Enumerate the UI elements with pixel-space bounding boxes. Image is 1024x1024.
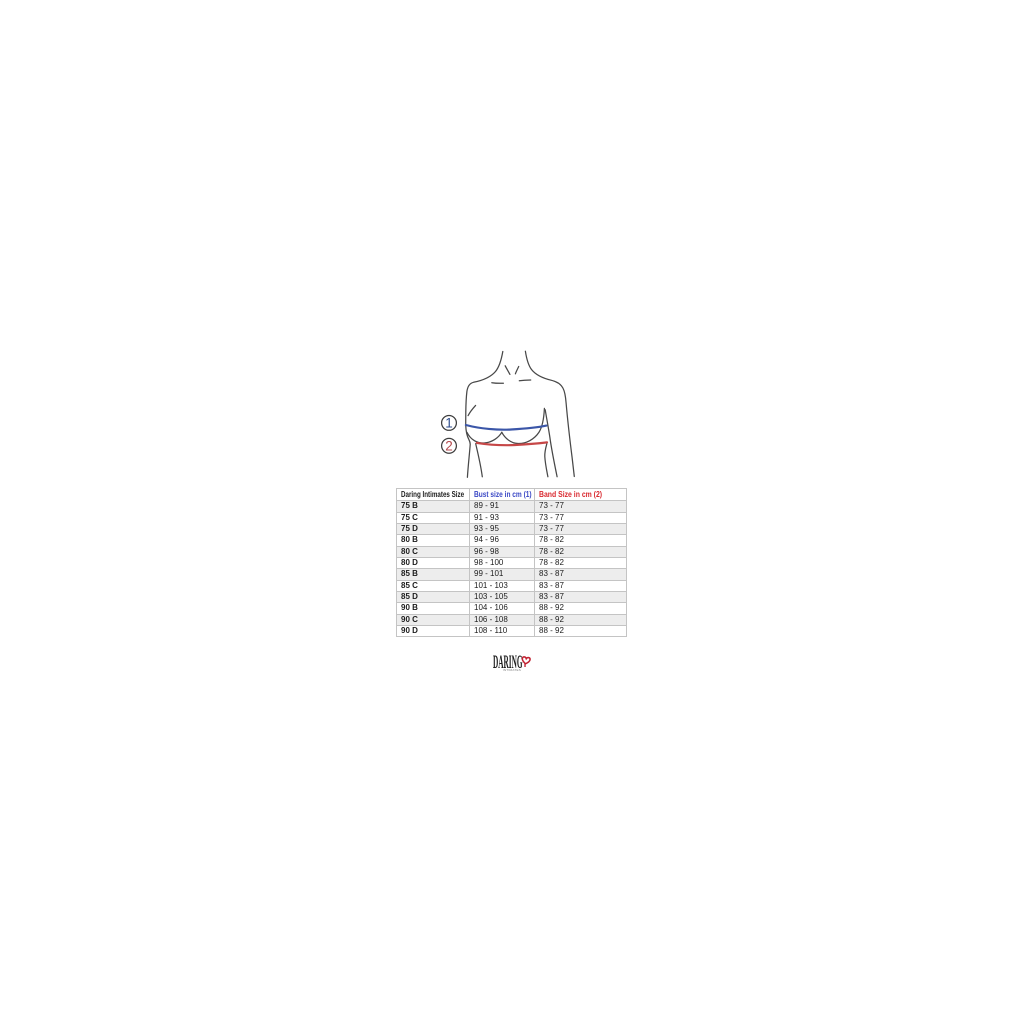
svg-text:2: 2 <box>445 439 453 454</box>
svg-text:1: 1 <box>445 416 453 431</box>
